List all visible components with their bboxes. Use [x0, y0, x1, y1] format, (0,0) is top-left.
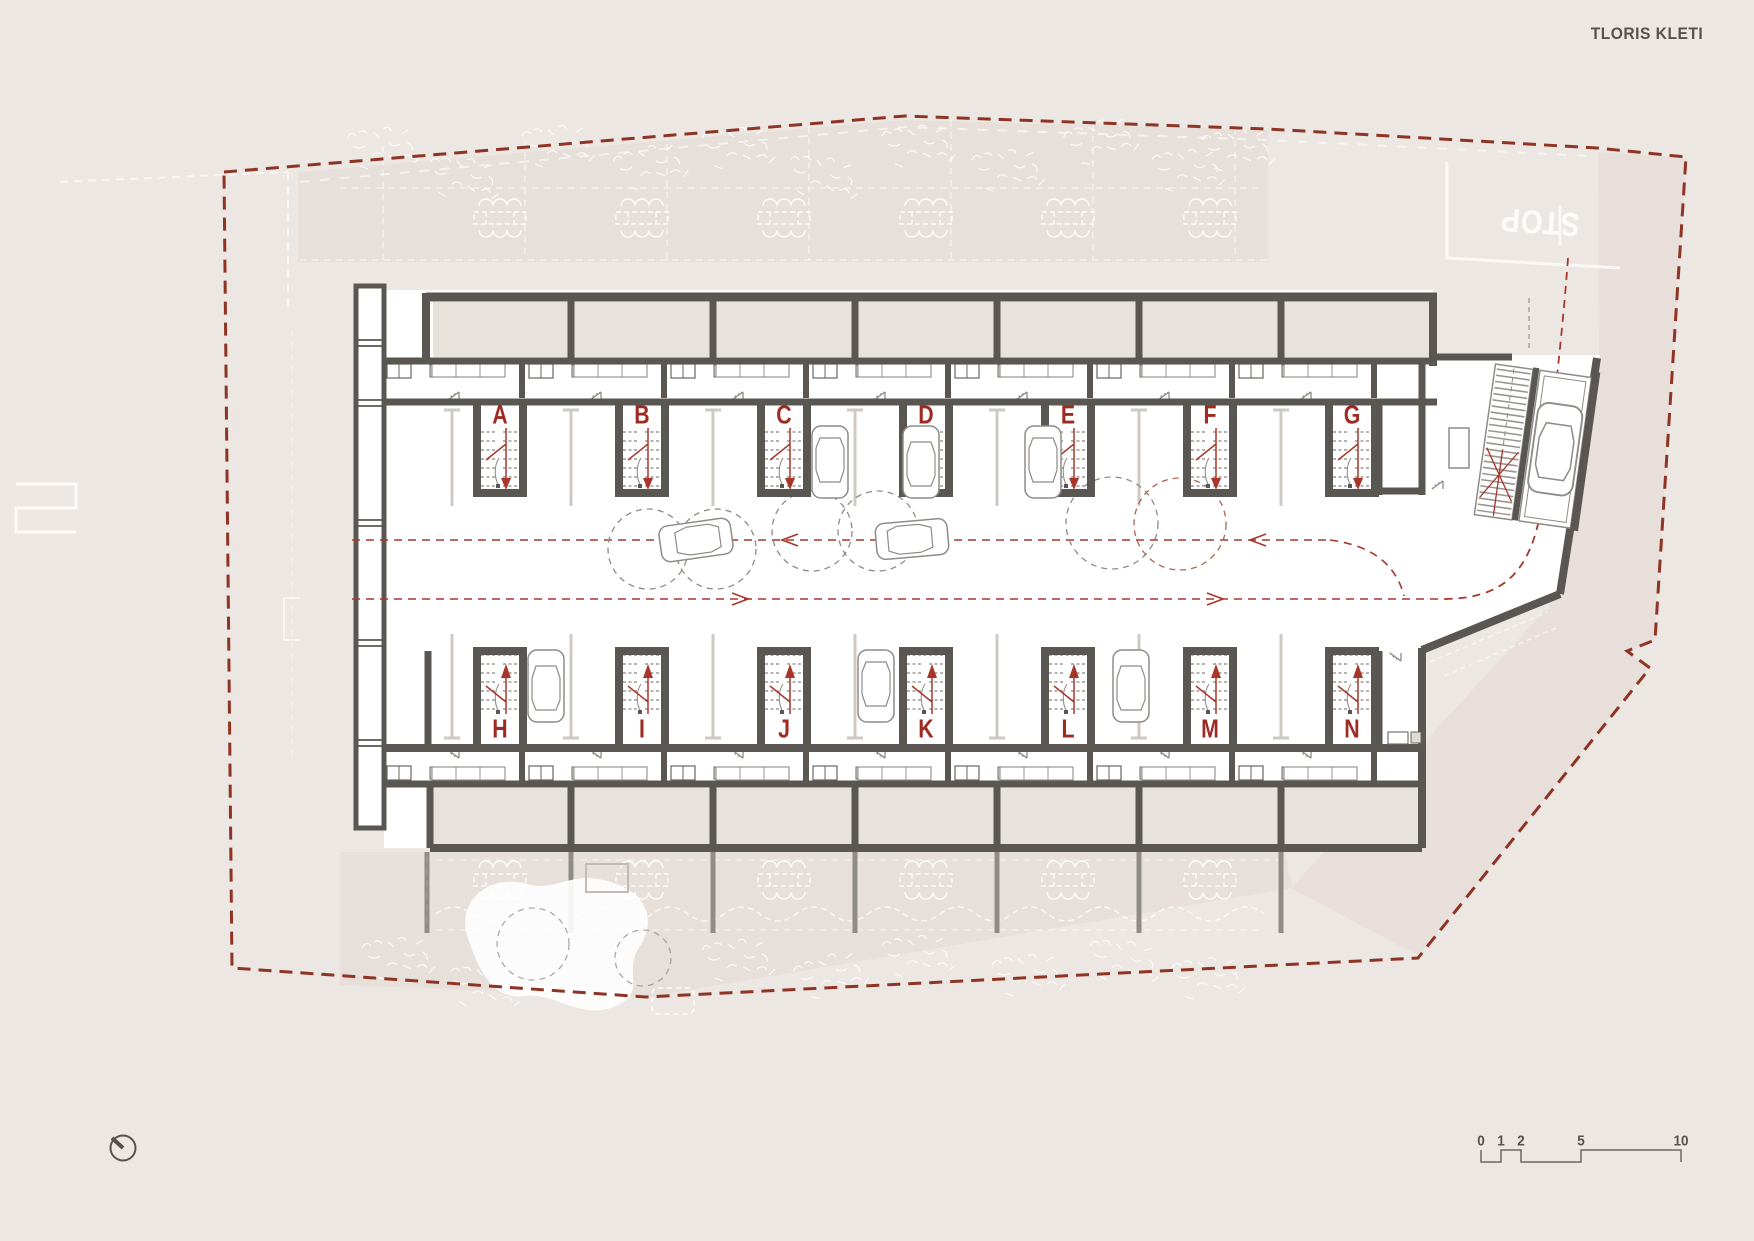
- scale-tick-1: 1: [1497, 1133, 1505, 1150]
- floor-plan-page: TLORIS KLETI STOP A B C D E F G H I J K …: [0, 0, 1754, 1241]
- stair-label-h: H: [492, 714, 507, 745]
- stair-label-d: D: [918, 400, 933, 431]
- stair-label-f: F: [1203, 400, 1216, 431]
- stair-label-b: B: [634, 400, 649, 431]
- stair-label-j: J: [778, 714, 790, 745]
- stair-label-n: N: [1344, 714, 1359, 745]
- stair-label-l: L: [1061, 714, 1074, 745]
- basement-building: [352, 258, 1600, 850]
- retaining-wall: [356, 286, 384, 828]
- stair-label-k: K: [918, 714, 933, 745]
- stair-label-i: I: [639, 714, 645, 745]
- scale-tick-2: 2: [1517, 1133, 1525, 1150]
- scale-bar: [1481, 1150, 1681, 1162]
- entry-ramp: [1474, 358, 1596, 530]
- stair-label-m: M: [1201, 714, 1219, 745]
- scale-tick-10: 10: [1673, 1133, 1688, 1150]
- scale-tick-0: 0: [1477, 1133, 1485, 1150]
- scale-tick-5: 5: [1577, 1133, 1585, 1150]
- stair-label-c: C: [776, 400, 791, 431]
- stair-label-g: G: [1344, 400, 1361, 431]
- floor-plan-drawing: [0, 0, 1754, 1241]
- north-indicator-icon: [111, 1136, 136, 1161]
- page-title: TLORIS KLETI: [1591, 24, 1703, 44]
- road-stop-marking: STOP: [1499, 200, 1581, 243]
- stair-label-e: E: [1061, 400, 1075, 431]
- stair-label-a: A: [492, 400, 507, 431]
